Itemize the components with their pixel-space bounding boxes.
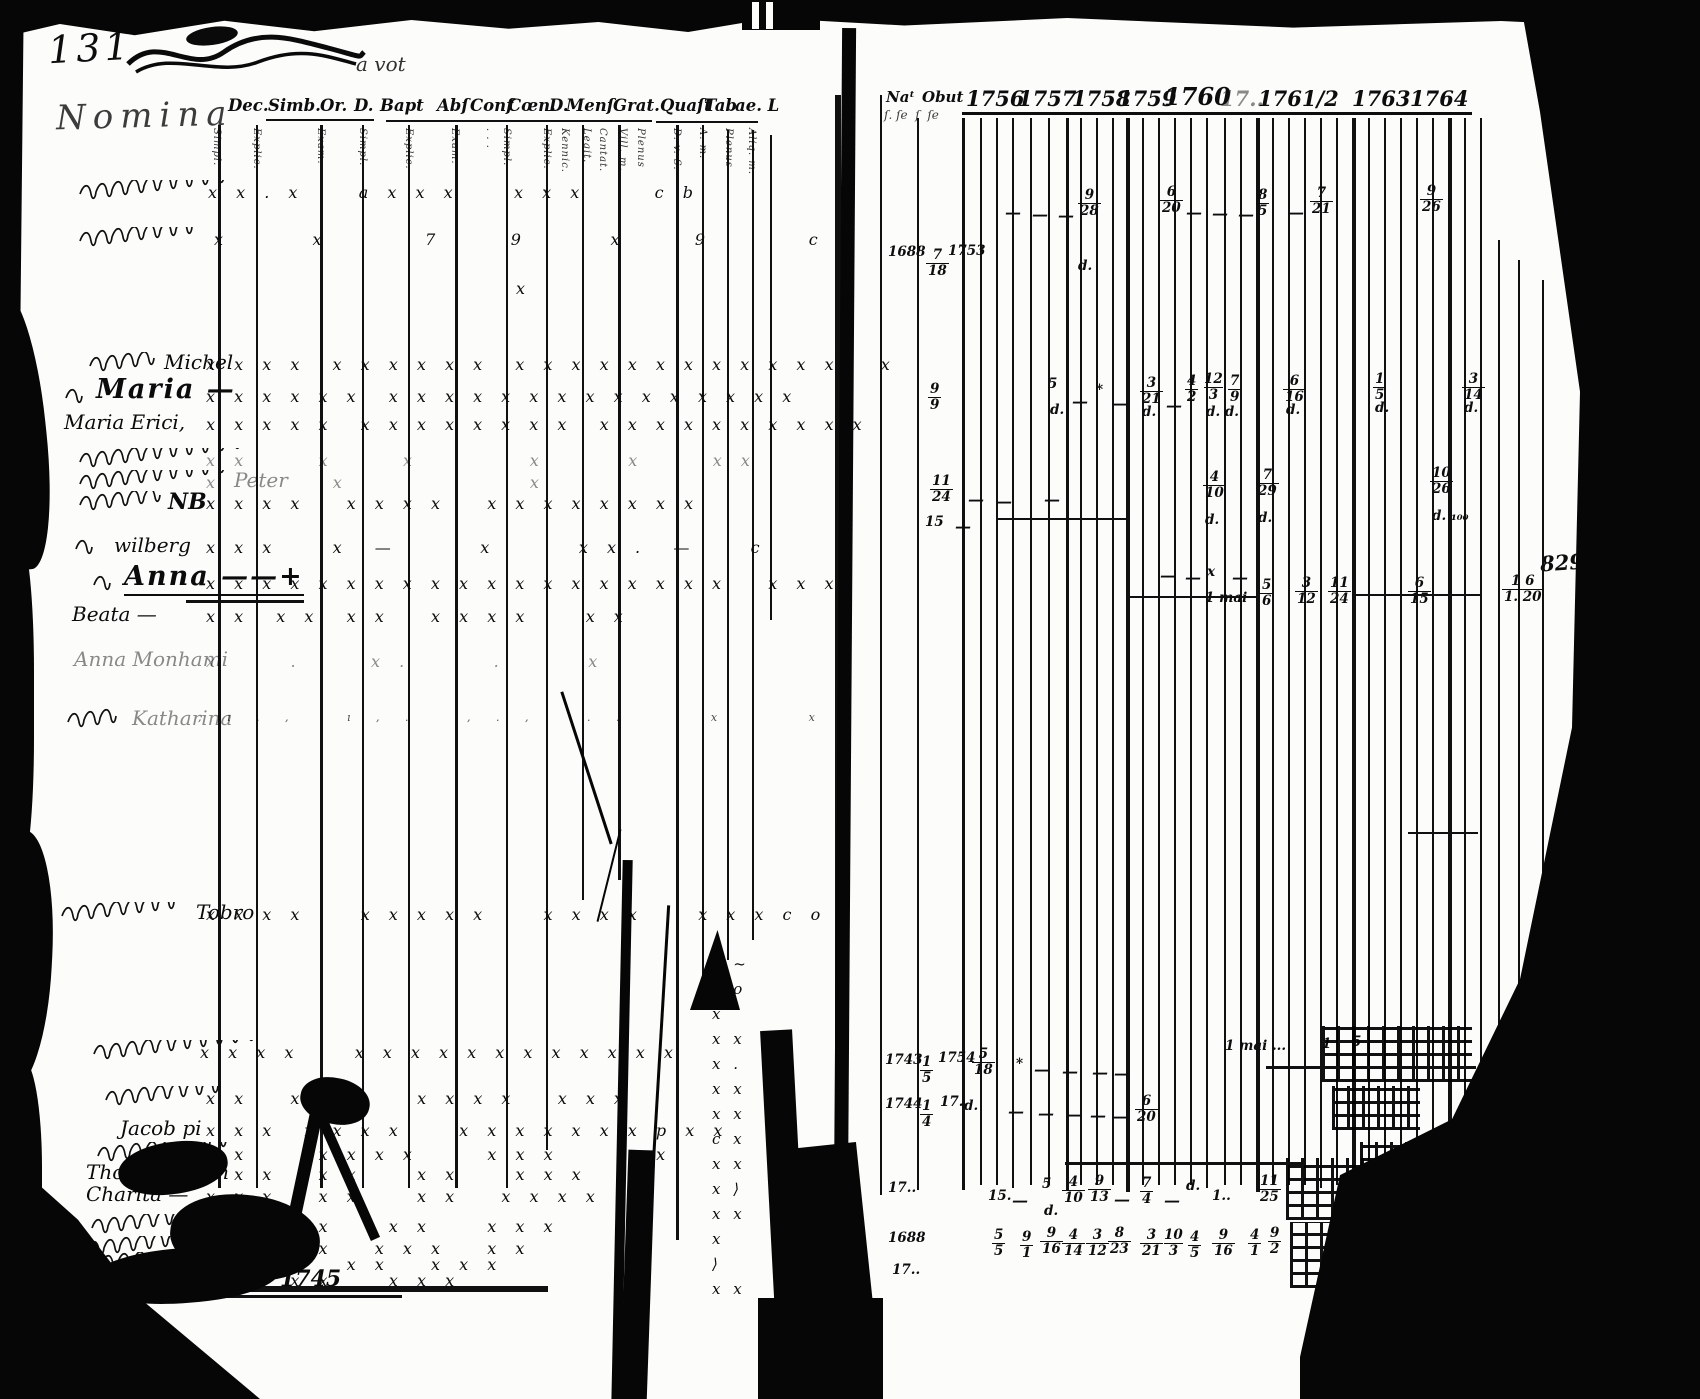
register-entry-fraction: 928 xyxy=(1078,188,1101,219)
register-entry-fraction: 15 xyxy=(920,1055,933,1086)
register-entry: d. xyxy=(1142,404,1156,420)
names-column-heading: Nomina xyxy=(56,94,235,139)
row-name: Beata — xyxy=(72,602,157,626)
header-underline xyxy=(266,119,374,121)
column-group-header: ae. L xyxy=(735,96,779,115)
register-entry: — xyxy=(1160,566,1176,585)
year-header-underline xyxy=(1254,112,1354,115)
register-entry: — xyxy=(1112,1107,1128,1126)
ink-hatch-marks xyxy=(1322,1026,1472,1082)
rotated-subcolumn-label: Explic. xyxy=(403,128,414,170)
register-entry: 17.. xyxy=(892,1262,920,1278)
register-entry: x xyxy=(1207,564,1215,580)
ink-rule-stroke xyxy=(1408,832,1478,834)
register-entry-fraction: 410 xyxy=(1203,470,1226,501)
rotated-subcolumn-label: Explic. xyxy=(541,128,552,170)
column-rule-line xyxy=(1096,118,1098,1185)
column-rule-line xyxy=(752,130,754,940)
register-entry: — xyxy=(1034,1060,1050,1079)
rotated-subcolumn-label: Explic. xyxy=(251,128,262,170)
register-entry: — xyxy=(1114,1064,1130,1083)
register-entry: — xyxy=(1062,1062,1078,1081)
register-entry-fraction: 916 xyxy=(1212,1228,1235,1259)
column-rule-line xyxy=(1012,118,1014,1188)
year-header-underline xyxy=(1160,112,1222,115)
register-entry-fraction: 1124 xyxy=(1328,576,1351,607)
column-rule-line xyxy=(1336,118,1338,1185)
scan-border-left xyxy=(0,288,60,573)
register-entry: — xyxy=(968,490,984,509)
row-name: wilberg xyxy=(114,533,191,557)
row-x-marks: x x x x x x x x x x x x x x x x x x x x … xyxy=(206,415,867,434)
register-entry: — xyxy=(1238,205,1254,224)
rotated-subcolumn-label: Legit. xyxy=(581,128,592,163)
column-group-header: Dec. xyxy=(228,96,269,115)
register-entry-fraction: 41 xyxy=(1248,1228,1261,1259)
register-entry-fraction: 312 xyxy=(1086,1228,1109,1259)
register-entry-fraction: 103 xyxy=(1164,1228,1183,1259)
scan-border-right xyxy=(1300,0,1700,1399)
register-entry: 1688 xyxy=(888,1230,926,1246)
register-entry: — xyxy=(1090,1106,1106,1125)
obiit-column-header: Obut xyxy=(922,88,963,106)
register-entry: — xyxy=(1032,205,1048,224)
row-x-marks: x x x x x x x x x x x x x x x x c o xyxy=(206,905,825,924)
register-entry: * xyxy=(1096,382,1103,398)
column-rule-line xyxy=(880,95,882,1195)
ink-hatch-marks xyxy=(1332,1086,1420,1130)
illegible-name-scrawl xyxy=(78,491,162,513)
column-rule-line xyxy=(1272,118,1274,1185)
register-entry-fraction: 91 xyxy=(1020,1230,1033,1261)
column-rule-line xyxy=(770,135,772,620)
register-entry: d. xyxy=(964,1098,978,1114)
row-name: Maria Erici, xyxy=(64,410,185,434)
register-entry: — xyxy=(1066,1105,1082,1124)
register-entry-fraction: 321 xyxy=(1140,1228,1163,1259)
column-group-header: Simb. xyxy=(268,96,321,115)
register-entry: d. xyxy=(1078,258,1092,274)
illegible-name-scrawl xyxy=(66,708,126,730)
column-rule-line xyxy=(1240,118,1242,1185)
register-entry-fraction: 85 xyxy=(1256,188,1269,219)
column-rule-line xyxy=(1190,118,1192,1185)
row-x-marks: x . x . . x xyxy=(206,652,602,671)
register-entry: 1 mai ... xyxy=(1225,1038,1286,1054)
row-x-marks: x x . x a x x x x x x c b xyxy=(208,183,698,202)
register-entry: — xyxy=(1212,204,1228,223)
column-group-header: Grat. xyxy=(613,96,660,115)
register-entry: d. xyxy=(1258,510,1272,526)
row-x-marks: x x x x x x x x x x x x x x x x x x x x … xyxy=(206,387,853,406)
register-entry-fraction: 56 xyxy=(1260,578,1273,609)
year-header: 1764 xyxy=(1410,86,1468,111)
column-rule-line xyxy=(1174,118,1176,1185)
register-entry: 5 xyxy=(1048,376,1057,392)
register-entry-fraction: 99 xyxy=(928,382,941,413)
illegible-name-scrawl xyxy=(64,384,90,406)
rotated-subcolumn-label: D. v. S. xyxy=(671,128,682,171)
column-rule-line xyxy=(1432,118,1434,1185)
column-rule-line xyxy=(1256,118,1260,1192)
register-entry-fraction: 718 xyxy=(926,248,949,279)
binding-slit xyxy=(766,2,773,29)
year-header-underline xyxy=(1406,112,1472,115)
register-entry-fraction: 74 xyxy=(1140,1176,1153,1207)
column-rule-line xyxy=(1206,118,1208,1188)
register-entry-fraction: 92 xyxy=(1268,1226,1281,1257)
register-entry: d. xyxy=(1286,402,1300,418)
rotated-subcolumn-label: Vill. m. xyxy=(617,128,628,172)
column-rule-line xyxy=(1080,118,1082,1185)
column-rule-line xyxy=(1126,118,1130,1192)
column-rule-line xyxy=(1304,118,1306,1185)
register-entry: — xyxy=(996,492,1012,511)
register-entry: 1.. xyxy=(1212,1188,1231,1204)
row-x-marks: x x 7 9 x 9 c xyxy=(214,230,823,249)
row-name: Jacob pi xyxy=(120,1116,202,1140)
row-x-marks: x x x x x x x x x x x x x x x x xyxy=(200,1043,678,1062)
row-x-marks: x x x x x x x x x x x x x x p x x xyxy=(206,1121,727,1140)
register-entry: — xyxy=(1114,1190,1130,1209)
register-entry-fraction: 312 xyxy=(1295,576,1318,607)
register-entry-fraction: 14 xyxy=(920,1099,933,1130)
column-rule-line xyxy=(1384,118,1386,1185)
column-group-header: Or. xyxy=(320,96,347,115)
register-entry-fraction: 414 xyxy=(1062,1228,1085,1259)
year-header: 1756 xyxy=(966,86,1024,111)
illegible-name-scrawl xyxy=(92,571,118,593)
register-entry: d. xyxy=(1044,1203,1058,1219)
column-group-header: D. xyxy=(354,96,373,115)
register-entry-fraction: 823 xyxy=(1108,1226,1131,1257)
row-x-marks: x x x x x x x x x x x xyxy=(206,1145,670,1164)
column-group-header: Conf xyxy=(470,96,513,115)
ink-rule-stroke xyxy=(1065,1162,1305,1165)
row-x-marks: , ı . , ı , . , . , . . x x x xyxy=(198,711,856,724)
illegible-name-scrawl xyxy=(88,352,158,374)
register-entry-fraction: 42 xyxy=(1185,374,1198,405)
row-x-marks: x x x x x x x x x x xyxy=(206,1165,586,1184)
rotated-subcolumn-label: A. m. xyxy=(697,128,708,159)
register-entry: — xyxy=(1164,1191,1180,1210)
rotated-subcolumn-label: Plenus xyxy=(635,128,646,168)
rotated-subcolumn-label: Simpl. xyxy=(501,128,512,166)
ink-rule-stroke xyxy=(186,600,304,603)
register-entry: — xyxy=(1012,1191,1028,1210)
column-rule-line xyxy=(1048,118,1050,1185)
column-rule-line xyxy=(1288,118,1290,1185)
register-entry: — xyxy=(1058,206,1074,225)
rotated-subcolumn-label: Simpl. xyxy=(211,128,222,166)
register-entry-fraction: 729 xyxy=(1256,468,1279,499)
register-entry: 5 xyxy=(1042,1176,1051,1192)
column-rule-line xyxy=(1498,240,1500,1120)
column-rule-line xyxy=(1480,118,1482,1180)
register-entry-fraction: 321 xyxy=(1140,376,1163,407)
rotated-subcolumn-label: · · · xyxy=(481,128,492,149)
register-entry-fraction: 616 xyxy=(1283,374,1306,405)
register-entry-fraction: 79 xyxy=(1228,374,1241,405)
column-group-header: Abſ xyxy=(437,96,468,115)
name-suffix-stroke: — xyxy=(130,602,156,626)
register-entry: 1 mai xyxy=(1205,590,1247,606)
column-rule-line xyxy=(702,125,704,1000)
nat-column-header: Naᵗ xyxy=(886,88,915,106)
ink-rule-stroke xyxy=(1352,594,1480,596)
register-entry-fraction: 916 xyxy=(1040,1226,1063,1257)
column-group-header: Tab xyxy=(704,96,737,115)
illegible-name-scrawl xyxy=(74,535,108,557)
illegible-name-scrawl xyxy=(78,180,228,202)
scan-border-left xyxy=(0,540,34,870)
register-entry-fraction: 1124 xyxy=(930,474,953,505)
register-entry-fraction: 410 xyxy=(1062,1175,1085,1206)
register-entry: — xyxy=(1166,396,1182,415)
column-rule-line xyxy=(1142,118,1144,1185)
scan-border-left xyxy=(0,828,59,1091)
header-underline xyxy=(564,120,652,122)
illegible-name-scrawl xyxy=(78,227,198,249)
tear-shadow xyxy=(758,1298,883,1399)
register-entry-fraction: 620 xyxy=(1135,1094,1158,1125)
column-rule-line xyxy=(980,118,982,1185)
register-entry: — xyxy=(1112,394,1128,413)
register-entry: — xyxy=(1008,1102,1024,1121)
row-x-marks: x x x x x x x x x x x x x x x x xyxy=(206,494,698,513)
register-entry: d. xyxy=(1464,400,1478,416)
register-entry-fraction: 518 xyxy=(972,1047,995,1078)
register-entry-fraction: 620 xyxy=(1160,185,1183,216)
illegible-name-scrawl xyxy=(60,902,190,924)
ink-rule-stroke xyxy=(1128,596,1258,598)
register-entry-fraction: 314 xyxy=(1462,372,1485,403)
row-x-marks: x xyxy=(516,279,530,298)
register-entry-fraction: 1026 xyxy=(1430,466,1453,497)
column-rule-line xyxy=(996,118,998,1185)
rotated-subcolumn-label: Kennic. xyxy=(559,128,570,173)
register-entry: d. xyxy=(1205,512,1219,528)
row-x-marks: x x x x — x x x . — c xyxy=(206,538,765,557)
register-entry: 1688 xyxy=(888,244,926,260)
register-entry: * xyxy=(1016,1056,1023,1072)
register-entry: d. xyxy=(1050,402,1064,418)
register-entry: — xyxy=(1288,203,1304,222)
register-entry: — xyxy=(955,517,971,536)
rotated-subcolumn-label: Plenus xyxy=(723,128,734,168)
register-entry: 1744 xyxy=(885,1096,923,1112)
row-x-marks: x x x x x x x x x x x x x x x x x x x x … xyxy=(206,574,839,593)
column-rule-line xyxy=(1158,118,1160,1185)
row-x-marks: x x x x x x x x x x x x x x x x x x x x … xyxy=(206,355,895,374)
register-entry: 1743 xyxy=(885,1052,923,1068)
year-header: 1763 xyxy=(1352,86,1410,111)
rotated-subcolumn-label: Exam. xyxy=(315,128,326,165)
register-entry: — xyxy=(1038,1104,1054,1123)
rotated-subcolumn-label: Simpl. xyxy=(357,128,368,166)
column-rule-line xyxy=(962,118,965,1190)
register-entry-fraction: 123 xyxy=(1204,372,1223,403)
register-entry: — xyxy=(1044,490,1060,509)
header-underline xyxy=(656,121,758,123)
register-entry: — xyxy=(1072,392,1088,411)
rotated-subcolumn-label: Cantat. xyxy=(597,128,608,172)
register-entry-fraction: 1125 xyxy=(1258,1174,1281,1205)
register-entry: — xyxy=(1232,568,1248,587)
row-name: NB xyxy=(168,489,207,515)
column-rule-line xyxy=(917,118,919,1190)
column-rule-line xyxy=(1112,118,1114,1185)
register-entry-fraction: 45 xyxy=(1188,1230,1201,1261)
register-entry: — xyxy=(1005,203,1021,222)
column-rule-line xyxy=(1066,118,1069,1190)
register-entry-fraction: 913 xyxy=(1088,1174,1111,1205)
register-entry: — xyxy=(1186,203,1202,222)
column-group-header: Menſ xyxy=(566,96,614,115)
register-entry: d. xyxy=(1186,1178,1200,1194)
register-entry: 15. xyxy=(988,1188,1012,1204)
register-entry-fraction: 721 xyxy=(1310,186,1333,217)
row-name: Anna Monhami xyxy=(74,647,228,671)
nat-obiit-subheader: ſ. ſe ſ ſe xyxy=(884,108,939,122)
row-x-marks: x x x x x x x x x x x x xyxy=(206,607,628,626)
row-x-marks: x x x xyxy=(206,473,544,492)
row-x-marks: x x x x x x x x x x xyxy=(206,1089,628,1108)
year-header-underline xyxy=(1014,112,1076,115)
header-underline xyxy=(386,120,576,122)
register-entry: d. ₁₀₀ xyxy=(1432,508,1469,524)
register-entry: d. d. xyxy=(1206,404,1239,420)
year-header-underline xyxy=(1348,112,1412,115)
column-rule-line xyxy=(546,125,548,1150)
register-entry: 1754 xyxy=(938,1050,976,1066)
binding-slit xyxy=(752,2,759,29)
column-rule-line xyxy=(1464,118,1466,1180)
register-entry-fraction: 1 61. 20 xyxy=(1502,574,1544,605)
scanned-register-page: 131 a vot Nomina Naᵗ Obut ſ. ſe ſ ſe 829… xyxy=(0,0,1700,1399)
column-rule-line xyxy=(1416,118,1418,1185)
register-entry: 15 xyxy=(925,514,944,530)
row-x-marks: x x x x x x x x xyxy=(206,451,755,470)
register-entry: — xyxy=(1185,568,1201,587)
column-rule-line xyxy=(1518,260,1520,1100)
column-group-header: Bapt xyxy=(380,96,424,115)
register-entry: d. xyxy=(1375,400,1389,416)
rotated-subcolumn-label: Exam. xyxy=(449,128,460,165)
column-rule-line xyxy=(676,125,679,1240)
column-rule-line xyxy=(1224,118,1226,1185)
column-rule-line xyxy=(1368,118,1370,1185)
year-header-underline xyxy=(962,112,1022,115)
year-header: 1761/2 xyxy=(1258,86,1339,111)
register-entry: 1753 xyxy=(948,243,986,259)
register-entry: 17.. xyxy=(888,1180,916,1196)
register-entry: — xyxy=(1092,1063,1108,1082)
tear-edge-line xyxy=(643,905,670,1314)
ink-rule-stroke xyxy=(1266,1066,1476,1069)
register-entry-fraction: 55 xyxy=(992,1228,1005,1259)
year-header: 1757 xyxy=(1018,86,1076,111)
register-entry-fraction: 926 xyxy=(1420,184,1443,215)
register-entry-fraction: 15 xyxy=(1373,372,1386,403)
column-rule-line xyxy=(1030,118,1032,1185)
ink-rule-stroke xyxy=(996,518,1126,520)
register-entry-fraction: 615 xyxy=(1408,576,1431,607)
rotated-subcolumn-label: Aliq. m. xyxy=(746,128,757,175)
